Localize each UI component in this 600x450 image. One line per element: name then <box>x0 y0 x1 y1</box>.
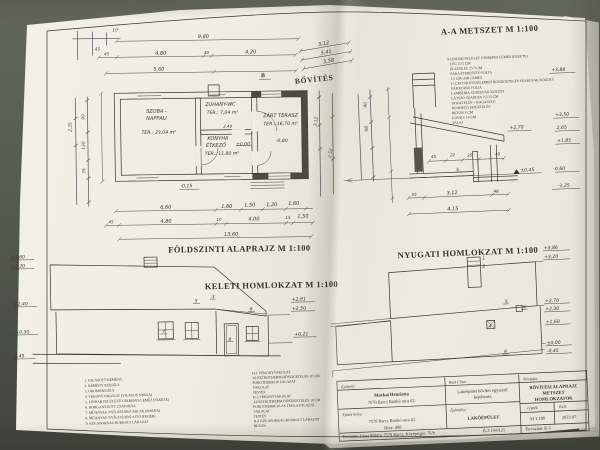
level-mark: +1,85 <box>557 138 571 145</box>
site-lot-number: Hrsz: 400 <box>384 425 402 431</box>
legend-ref: 1 <box>482 256 485 262</box>
dimension-label: 1,20 <box>266 202 277 208</box>
legend: 1. FALAZOTT KÉMÉNY 2. KÉMÉNY SZEGÉLY 3. … <box>84 368 322 433</box>
photo-of-architectural-drawing: SZOBA - NAPPALI TER.: 23,04 m² ZUHANY-WC… <box>0 0 600 450</box>
legend-item: FESTÉS <box>253 389 266 394</box>
room-area: TER.: 7,04 m² <box>207 110 239 116</box>
dimension-label: 3,58 <box>323 58 335 66</box>
drawing-title: bejelentés <box>474 394 492 400</box>
dimension-label: 35 <box>467 153 473 158</box>
legend-item: 2. KÉMÉNY SZEGÉLY <box>84 382 120 388</box>
level-mark: -0,60 <box>553 166 565 172</box>
dimension-label: 13,60 <box>224 232 238 238</box>
dimension-label: 4,80 <box>160 219 171 225</box>
dimension-label: 1,80 <box>221 204 232 210</box>
east-title: KELETI HOMLOKZAT M 1:100 <box>205 279 338 291</box>
level-mark: ±0,45 <box>520 167 534 174</box>
pen-dim: 2,52 <box>327 148 334 159</box>
dimension-chains-fold: 3,12 3,41 3,58 <box>298 36 355 71</box>
dimension-label: 22 <box>450 152 456 157</box>
plan-type: BŐVÍTÉSI ALAPRAJZ <box>529 383 577 390</box>
dimension-label: 1,50 <box>244 202 255 208</box>
room-label: ZÁRT TERASZ <box>262 112 298 120</box>
entrance-steps <box>250 182 284 188</box>
dimension-label: 45 <box>431 154 437 159</box>
p pen-dim: 10 <box>112 27 118 33</box>
section-title: A-A METSZET M 1:100 <box>441 23 539 37</box>
date-value: 2023.07. <box>562 414 578 420</box>
east-eaves <box>51 306 266 318</box>
pen-dim: 130 <box>81 141 87 150</box>
level-mark: -1,25 <box>558 183 570 189</box>
section-drawing <box>339 69 542 205</box>
plan-number: Tervszám: É-3 <box>525 425 552 431</box>
level-mark: +3,60 <box>11 254 25 260</box>
dimension-label: 2,40 <box>223 124 232 129</box>
room-area: TER.: 16,70 m² <box>263 121 298 127</box>
drawing-title: Lakóépület bővítés egyszerű <box>457 387 508 394</box>
level-mark: +0,30 <box>15 329 29 335</box>
dimension-label: 55 <box>412 192 418 197</box>
room-label: NAPPALI <box>146 116 167 122</box>
dimension-label: 3,12 <box>318 40 330 48</box>
level-mark: ±0,00 <box>236 141 250 147</box>
designer-name: Tervezte: Utasi Miklós 7570 Barcs, Közép… <box>342 430 436 440</box>
legend-item: VAKOLAT <box>253 409 270 414</box>
level-mark: +2,40 <box>14 301 28 307</box>
pen-dim: 3,12 <box>313 116 320 127</box>
east-legend-refs: 5 3 6 7 8 <box>160 293 256 344</box>
west-roof <box>388 262 537 319</box>
room-area: TER.: 11,80 m² <box>205 151 240 157</box>
dimension-label: 6,60 <box>160 205 171 211</box>
titleblock-label: Építés helye: <box>341 411 364 417</box>
dimension-label: 45 <box>108 219 114 224</box>
floor-plan: SZOBA - NAPPALI TER.: 23,04 m² ZUHANY-WC… <box>66 24 357 256</box>
plan-type: METSZET <box>542 390 564 396</box>
plan-title: FÖLDSZINTI ALAPRAJZ M 1:100 <box>168 243 310 255</box>
layer-line: KAVICS 10 CM <box>452 115 477 120</box>
room-label: ÉTKEZŐ <box>206 141 226 149</box>
legend-item: 1. FALAZOTT KÉMÉNY <box>84 376 123 382</box>
dimension-label: 4,20 <box>245 49 256 55</box>
west-title: NYUGATI HOMLOKZAT M 1:100 <box>397 245 538 261</box>
legend-ref: 4 <box>489 324 492 330</box>
west-elevation: NYUGATI HOMLOKZAT M 1:100 +3,86 +3,20 +2… <box>328 243 575 377</box>
dimension-label: 5,60 <box>153 67 164 73</box>
legend-item: FESTÉS <box>253 413 266 418</box>
dimension-label: 4,00 <box>248 216 259 222</box>
dimension-label: 3,41 <box>320 49 332 57</box>
drawing-linework: SZOBA - NAPPALI TER.: 23,04 m² ZUHANY-WC… <box>0 0 600 450</box>
pen-dim: 45 <box>95 47 101 53</box>
legend-ref: 2 <box>482 264 485 270</box>
section-mark-b: B <box>261 73 265 79</box>
pen-dim: 2,35 <box>68 122 74 132</box>
room-area: TER.: 23,04 m² <box>142 129 177 135</box>
titleblock-label: Rajz Címe: <box>448 379 468 385</box>
pen-dim: 90 <box>80 114 86 120</box>
room-label: ZUHANY-WC <box>204 102 236 108</box>
east-ground <box>33 350 281 365</box>
level-mark: 2,65 <box>556 125 567 131</box>
legend-item: BETON <box>254 424 266 428</box>
west-eaves-left <box>331 319 391 327</box>
extension-label: BŐVÍTÉS <box>294 72 334 86</box>
titleblock-label: Tervfajta: <box>523 376 539 382</box>
level-note: -0,15 <box>180 183 192 189</box>
titleblock-label: Építmény: <box>449 407 467 413</box>
building-type: LAKÓÉPÜLET <box>467 414 499 420</box>
room-label: KONYHA <box>207 136 229 142</box>
level-mark: -0,45 <box>13 353 25 359</box>
dimension-label: 48 <box>493 188 499 193</box>
pen-dim: 98 <box>364 126 370 132</box>
dimension-label: 1,50 <box>297 214 308 220</box>
level-mark: +3,86 <box>551 67 565 74</box>
layer-line: TALAJ <box>452 121 463 125</box>
level-mark: -0,80 <box>276 138 288 144</box>
dimension-label: 1,60 <box>288 201 299 207</box>
legend-item: VAKOLAT <box>253 385 270 390</box>
east-windows-door <box>156 320 261 357</box>
layer-line: A LINDAB FELÜLET CSEREPES LEMEZ (FEKETE) <box>447 53 529 61</box>
level-mark: +2,50 <box>292 305 306 311</box>
west-level-marks: +3,86 +3,20 +2,70 +2,30 +1,60 ±0,00 -0,4… <box>535 244 574 354</box>
dimension-label: 4,80 <box>155 51 166 57</box>
pen-dim: 35 <box>81 168 87 174</box>
legend-item: POROTHERM 30 FALAZAT <box>252 380 296 385</box>
title-block: Építtető: Markai Henrietta 7570 Barcs Bi… <box>337 371 589 441</box>
dimension-label: 40 <box>204 50 210 55</box>
titleblock-label: Kelt: <box>558 404 568 409</box>
scale-value: M 1:100 <box>530 416 546 422</box>
dimension-label: 45 <box>104 51 110 56</box>
plan-new-walls <box>251 91 308 180</box>
section-a-a: A-A METSZET M 1:100 A LINDAB FELÜLET CSE… <box>338 21 583 218</box>
level-mark: +2,70 <box>509 124 523 131</box>
plan-type: HOMLOKZATOK <box>535 395 573 402</box>
client-address: 7570 Barcs Bimbó utca 62. <box>368 398 416 405</box>
section-layer-list: A LINDAB FELÜLET CSEREPES LEMEZ (FEKETE)… <box>447 52 557 125</box>
level-mark: +2,81 <box>292 296 306 302</box>
client-name: Markai Henrietta <box>374 391 410 397</box>
east-chimney <box>144 257 157 267</box>
level-mark: +3,50 <box>555 112 569 119</box>
gutter-box <box>516 305 522 311</box>
dimension-label: 3,12 <box>446 190 457 196</box>
titleblock-label: Lépték <box>526 405 538 410</box>
east-elevation: +3,60 +3,20 +2,40 +0,30 -0,45 +2,81 +2,5… <box>10 249 340 366</box>
level-mark: +3,20 <box>11 263 25 269</box>
legend-item: 3. OROMSZEGÉLY <box>85 387 116 393</box>
titleblock-label: Építtető: <box>340 383 356 389</box>
east-level-marks: +3,60 +3,20 +2,40 +0,30 -0,45 +2,81 +2,5… <box>10 249 317 359</box>
pen-dim: 40 <box>363 102 369 108</box>
dimension-label: 10 <box>216 217 222 222</box>
dimension-chains-bottom: 6,60 1,80 1,50 1,20 1,60 45 4,80 10 4,00… <box>104 188 316 242</box>
section-pen-annotations: 40 98 <box>358 89 376 181</box>
dimension-label: 15 <box>285 215 291 220</box>
dimension-label: 40 <box>495 151 501 156</box>
legend-ref: 5 <box>456 167 459 173</box>
level-mark: +0,21 <box>294 331 308 337</box>
west-chimney <box>467 257 481 287</box>
dimension-label: 4,15 <box>447 206 458 212</box>
site-address: 7570 Barcs Bimbó utca 62. <box>368 417 416 424</box>
designer-registration: É-3 14-0121 <box>483 427 505 433</box>
dimension-label: 9,80 <box>198 34 209 40</box>
room-label: SZOBA - <box>146 109 167 115</box>
layer-line: LÉC 25/5 CM <box>450 60 472 66</box>
